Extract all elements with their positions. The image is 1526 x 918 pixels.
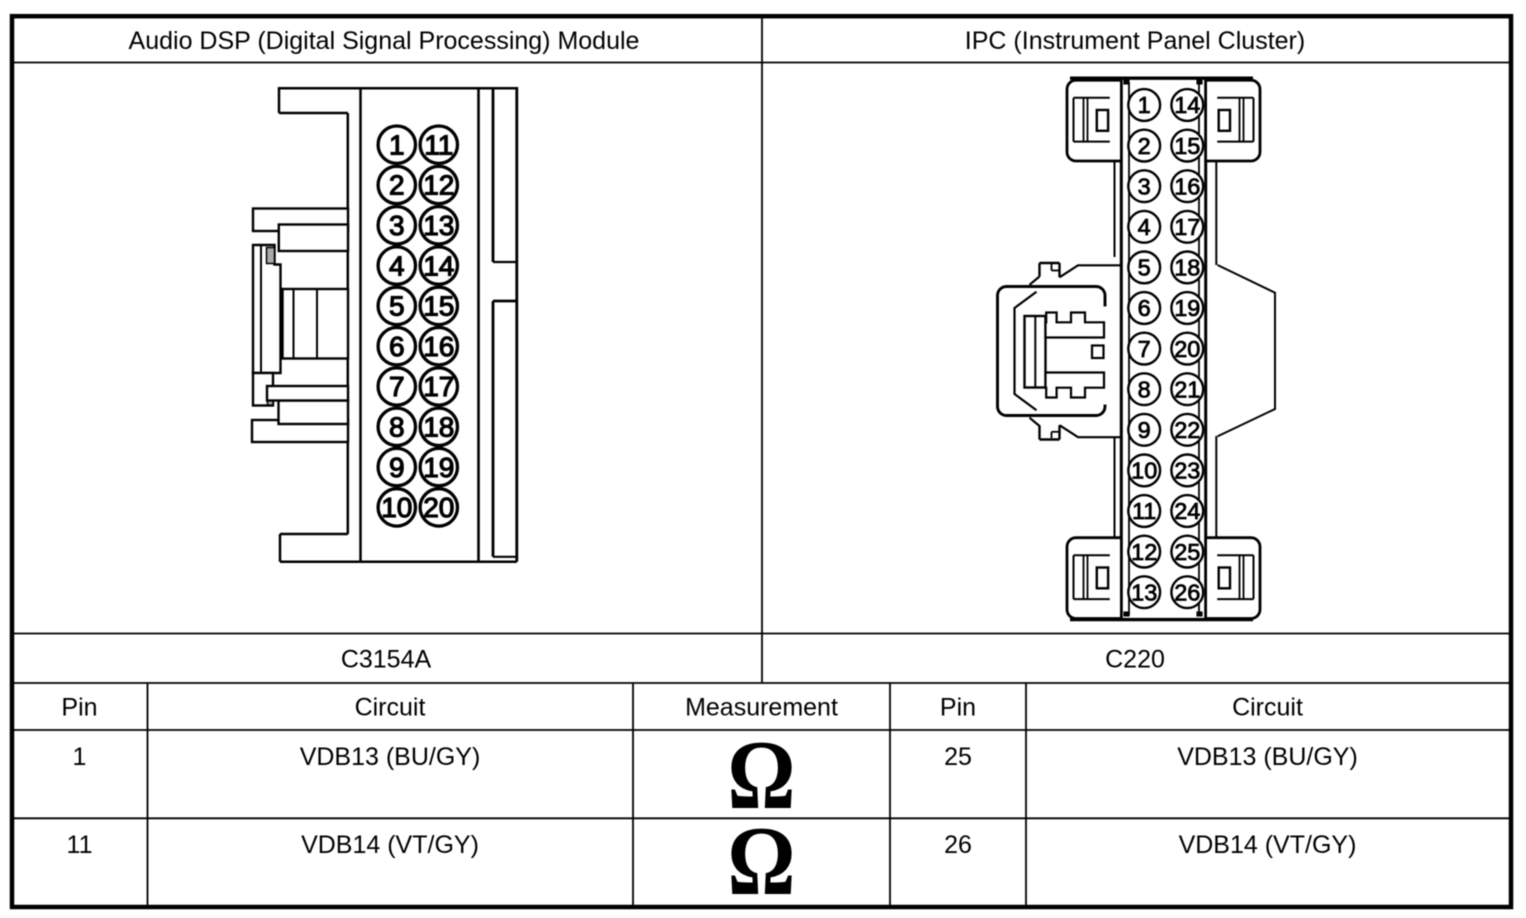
svg-text:20: 20	[423, 492, 454, 523]
svg-text:VDB14 (VT/GY): VDB14 (VT/GY)	[1179, 831, 1357, 859]
svg-text:4: 4	[389, 250, 405, 281]
svg-text:17: 17	[423, 371, 454, 402]
svg-text:7: 7	[1138, 336, 1151, 362]
svg-text:VDB14 (VT/GY): VDB14 (VT/GY)	[301, 831, 479, 859]
svg-text:11: 11	[424, 129, 453, 160]
svg-text:16: 16	[1174, 173, 1200, 199]
svg-text:15: 15	[423, 291, 454, 322]
svg-text:Measurement: Measurement	[685, 694, 838, 722]
svg-text:25: 25	[944, 743, 972, 771]
svg-text:19: 19	[423, 452, 454, 483]
svg-text:C3154A: C3154A	[341, 646, 432, 674]
svg-text:15: 15	[1174, 133, 1200, 159]
svg-text:6: 6	[1138, 295, 1151, 321]
svg-text:12: 12	[1131, 539, 1157, 565]
svg-text:25: 25	[1174, 539, 1200, 565]
svg-text:2: 2	[1138, 133, 1151, 159]
svg-text:14: 14	[1174, 92, 1200, 118]
svg-text:3: 3	[389, 210, 405, 241]
svg-text:6: 6	[389, 331, 405, 362]
svg-text:26: 26	[1174, 579, 1200, 605]
svg-text:21: 21	[1174, 376, 1200, 402]
svg-text:5: 5	[389, 291, 405, 322]
svg-text:13: 13	[1131, 579, 1157, 605]
svg-text:8: 8	[1138, 376, 1151, 402]
svg-text:5: 5	[1138, 255, 1151, 281]
svg-text:Audio DSP (Digital Signal Proc: Audio DSP (Digital Signal Processing) Mo…	[129, 27, 640, 55]
svg-text:24: 24	[1174, 498, 1200, 524]
svg-text:Pin: Pin	[61, 694, 97, 722]
svg-text:22: 22	[1174, 417, 1200, 443]
svg-text:19: 19	[1174, 295, 1200, 321]
svg-text:18: 18	[423, 412, 454, 443]
svg-text:11: 11	[1132, 498, 1156, 524]
svg-text:10: 10	[381, 492, 412, 523]
svg-text:4: 4	[1138, 214, 1151, 240]
svg-text:Pin: Pin	[940, 694, 976, 722]
svg-text:7: 7	[389, 371, 405, 402]
svg-text:Ω: Ω	[728, 806, 796, 915]
svg-text:18: 18	[1174, 255, 1200, 281]
svg-text:1: 1	[389, 129, 405, 160]
svg-text:Circuit: Circuit	[355, 694, 426, 722]
svg-text:9: 9	[1138, 417, 1151, 443]
svg-text:9: 9	[389, 452, 405, 483]
svg-text:17: 17	[1174, 214, 1200, 240]
svg-text:IPC (Instrument Panel Cluster): IPC (Instrument Panel Cluster)	[965, 27, 1305, 55]
svg-text:11: 11	[67, 831, 93, 859]
svg-text:20: 20	[1174, 336, 1200, 362]
svg-text:3: 3	[1138, 173, 1151, 199]
svg-text:Circuit: Circuit	[1232, 694, 1303, 722]
svg-text:26: 26	[944, 831, 972, 859]
svg-text:1: 1	[1138, 92, 1151, 118]
svg-text:VDB13 (BU/GY): VDB13 (BU/GY)	[300, 743, 481, 771]
svg-text:16: 16	[423, 331, 454, 362]
svg-text:VDB13 (BU/GY): VDB13 (BU/GY)	[1177, 743, 1358, 771]
svg-text:12: 12	[423, 170, 454, 201]
svg-text:8: 8	[389, 412, 405, 443]
svg-text:14: 14	[423, 250, 454, 281]
svg-text:23: 23	[1174, 458, 1200, 484]
svg-text:13: 13	[423, 210, 454, 241]
svg-text:10: 10	[1131, 458, 1157, 484]
svg-text:C220: C220	[1105, 646, 1165, 674]
svg-text:2: 2	[389, 170, 405, 201]
svg-text:1: 1	[73, 743, 87, 771]
